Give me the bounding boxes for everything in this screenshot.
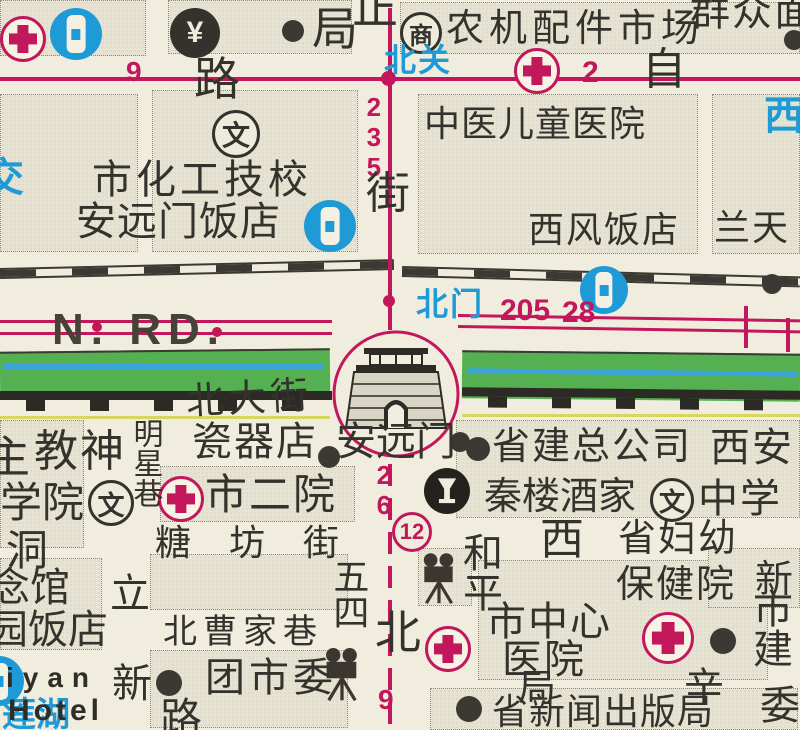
label-xifeng-hotel: 西风饭店 xyxy=(528,212,680,248)
route-number-9-bottom: 9 xyxy=(378,686,394,714)
label-xi-road-char: 西 xyxy=(540,518,584,562)
label-seminary-line1: 教神 xyxy=(34,430,126,474)
route-number-28: 28 xyxy=(562,298,595,328)
label-city-construction-committee: 市建 xyxy=(746,588,792,668)
label-street-jie: 街 xyxy=(366,172,410,216)
label-qunzhong-partial: 群众面 xyxy=(690,0,800,32)
label-ziqiang-road-char: 自 xyxy=(642,48,686,92)
label-memorial-hall-partial: 念馆 xyxy=(0,568,70,608)
label-maternal-child-line1: 省妇幼 xyxy=(618,520,738,558)
label-lixin-street-xin: 新 xyxy=(112,664,152,704)
label-anyuanmen-gate: 安远门 xyxy=(336,422,456,462)
label-zhu-partial: 主 xyxy=(0,436,30,480)
label-north-road-en: N. RD. xyxy=(52,308,226,352)
route-number-9: 9 xyxy=(126,58,142,86)
hospital-cross-icon xyxy=(0,16,46,62)
poi-dot-icon xyxy=(156,670,182,696)
telephone-icon xyxy=(304,200,356,252)
poi-dot-icon xyxy=(282,20,304,42)
route-number-2: 2 xyxy=(582,58,599,88)
poi-dot-icon xyxy=(762,274,782,294)
hospital-cross-icon xyxy=(514,48,560,94)
label-bei-street-char: 北 xyxy=(368,608,421,654)
label-seminary-line2: 学院 xyxy=(0,482,84,524)
label-street-zheng-partial: 正 xyxy=(352,0,398,30)
label-hotel-en: Hotel xyxy=(8,696,103,726)
label-central-hospital-line1: 市中心 xyxy=(486,602,612,642)
road-line xyxy=(744,306,748,348)
telephone-icon xyxy=(50,8,102,60)
scanned-city-map: ¥ 商 文 文 文 12 局 路 9 正 北关 2 自 农机配件市场 群众面 交… xyxy=(0,0,800,730)
label-anyuanmen-hotel: 安远门饭店 xyxy=(76,202,281,242)
label-youth-league-committee: 团市委 xyxy=(205,658,337,698)
label-garden-hotel-partial: 园饭店 xyxy=(0,610,108,650)
cinema-camera-icon xyxy=(418,552,460,606)
label-lantian: 兰天 xyxy=(714,210,790,246)
route-number-205: 205 xyxy=(500,296,550,326)
label-beicaojia-lane: 北曹家巷 xyxy=(163,615,323,649)
railway-line xyxy=(0,259,394,279)
label-wei-partial: 委 xyxy=(760,686,800,726)
label-qinlou-restaurant: 秦楼酒家 xyxy=(484,478,636,516)
restaurant-goblet-icon xyxy=(424,468,470,514)
label-city-no2-hospital: 市二院 xyxy=(205,474,337,516)
label-road-char-bottom: 路 xyxy=(160,698,202,730)
label-agri-machinery-market: 农机配件市场 xyxy=(446,10,704,48)
label-porcelain-shop: 瓷器店 xyxy=(192,422,318,462)
label-lixin-street-li: 立 xyxy=(110,574,150,614)
label-wusi: 五四 xyxy=(328,558,369,630)
label-provincial-construction-co: 省建总公司 xyxy=(492,428,692,466)
road-line xyxy=(786,318,790,352)
label-chemical-school: 市化工技校 xyxy=(92,160,312,200)
label-tcm-children-hospital: 中医儿童医院 xyxy=(424,106,646,142)
label-press-publication-bureau: 省新闻出版局 xyxy=(492,694,714,730)
label-mingxing-lane: 明星巷 xyxy=(127,418,162,508)
label-xi-blue-partial: 西 xyxy=(764,96,800,136)
city-wall xyxy=(462,387,800,413)
hospital-cross-icon xyxy=(425,626,471,672)
route-number-26: 26 xyxy=(368,460,398,520)
bank-icon: ¥ xyxy=(170,8,220,58)
label-beidajie: 北大街 xyxy=(185,377,313,422)
label-xian-middle-school-line1: 西安 xyxy=(710,428,794,468)
label-jiao-partial: 交 xyxy=(0,158,24,198)
bus-stop-beiguan: 北关 xyxy=(384,44,452,76)
label-hotel-pinyin-partial: iyan xyxy=(6,664,98,692)
school-icon: 文 xyxy=(212,110,260,158)
bus-stop-beimen: 北门 xyxy=(416,288,484,320)
hospital-cross-icon xyxy=(158,476,204,522)
moat-water-line xyxy=(4,364,324,369)
road-junction-dot xyxy=(383,295,395,307)
hospital-cross-icon xyxy=(642,612,694,664)
wall-base-line xyxy=(462,414,800,417)
poi-dot-icon xyxy=(710,628,736,654)
poi-dot-icon xyxy=(456,696,482,722)
label-road-char: 路 xyxy=(194,56,240,102)
label-tangfang-street: 糖坊街 xyxy=(155,525,377,561)
label-maternal-child-line2: 保健院 xyxy=(616,566,736,604)
label-xian-middle-school-line2: 中学 xyxy=(698,479,782,519)
school-icon: 文 xyxy=(650,478,694,522)
